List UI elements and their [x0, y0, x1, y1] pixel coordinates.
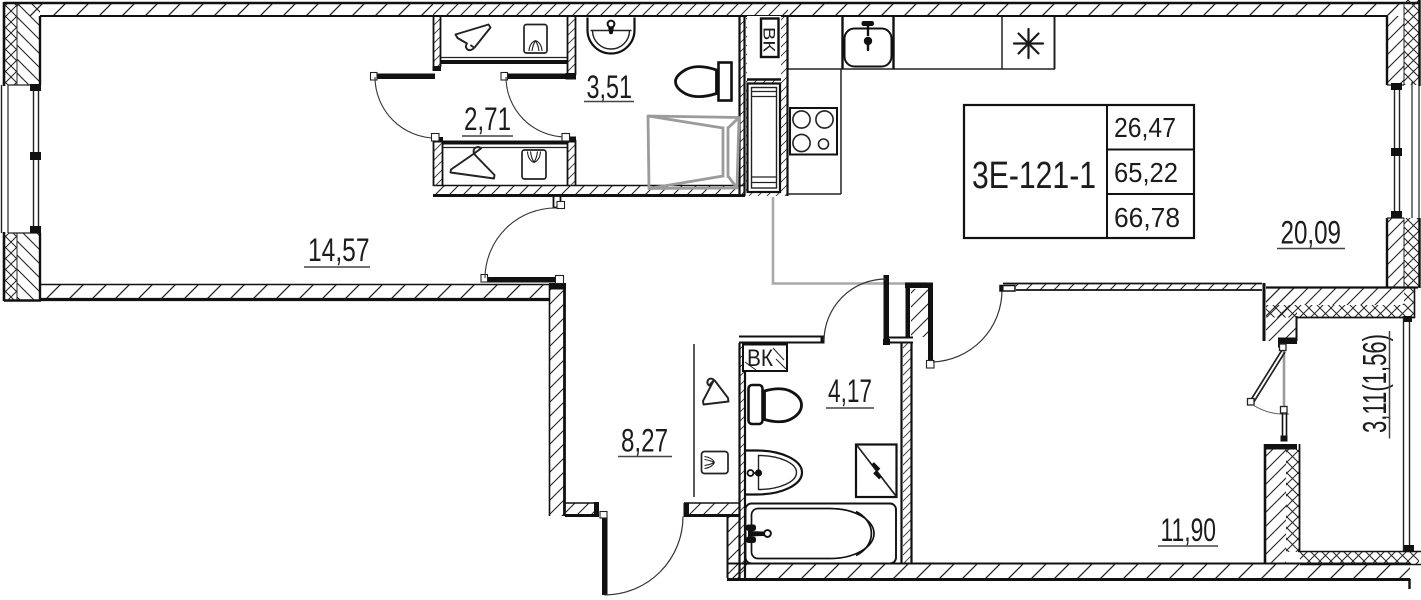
svg-text:65,22: 65,22: [1114, 157, 1178, 188]
svg-text:3Е-121-1: 3Е-121-1: [972, 155, 1096, 197]
svg-text:2,71: 2,71: [464, 101, 511, 137]
svg-text:ВК: ВК: [747, 345, 773, 372]
svg-text:20,09: 20,09: [1281, 215, 1342, 251]
svg-text:3,11(1,56): 3,11(1,56): [1356, 334, 1393, 433]
svg-text:14,57: 14,57: [308, 232, 370, 268]
svg-text:4,17: 4,17: [828, 373, 872, 409]
svg-text:3,51: 3,51: [587, 69, 633, 105]
svg-text:66,78: 66,78: [1114, 202, 1180, 233]
svg-text:11,90: 11,90: [1161, 512, 1217, 548]
svg-text:26,47: 26,47: [1114, 112, 1176, 143]
svg-text:ВК: ВК: [760, 27, 779, 52]
svg-text:8,27: 8,27: [621, 423, 668, 459]
